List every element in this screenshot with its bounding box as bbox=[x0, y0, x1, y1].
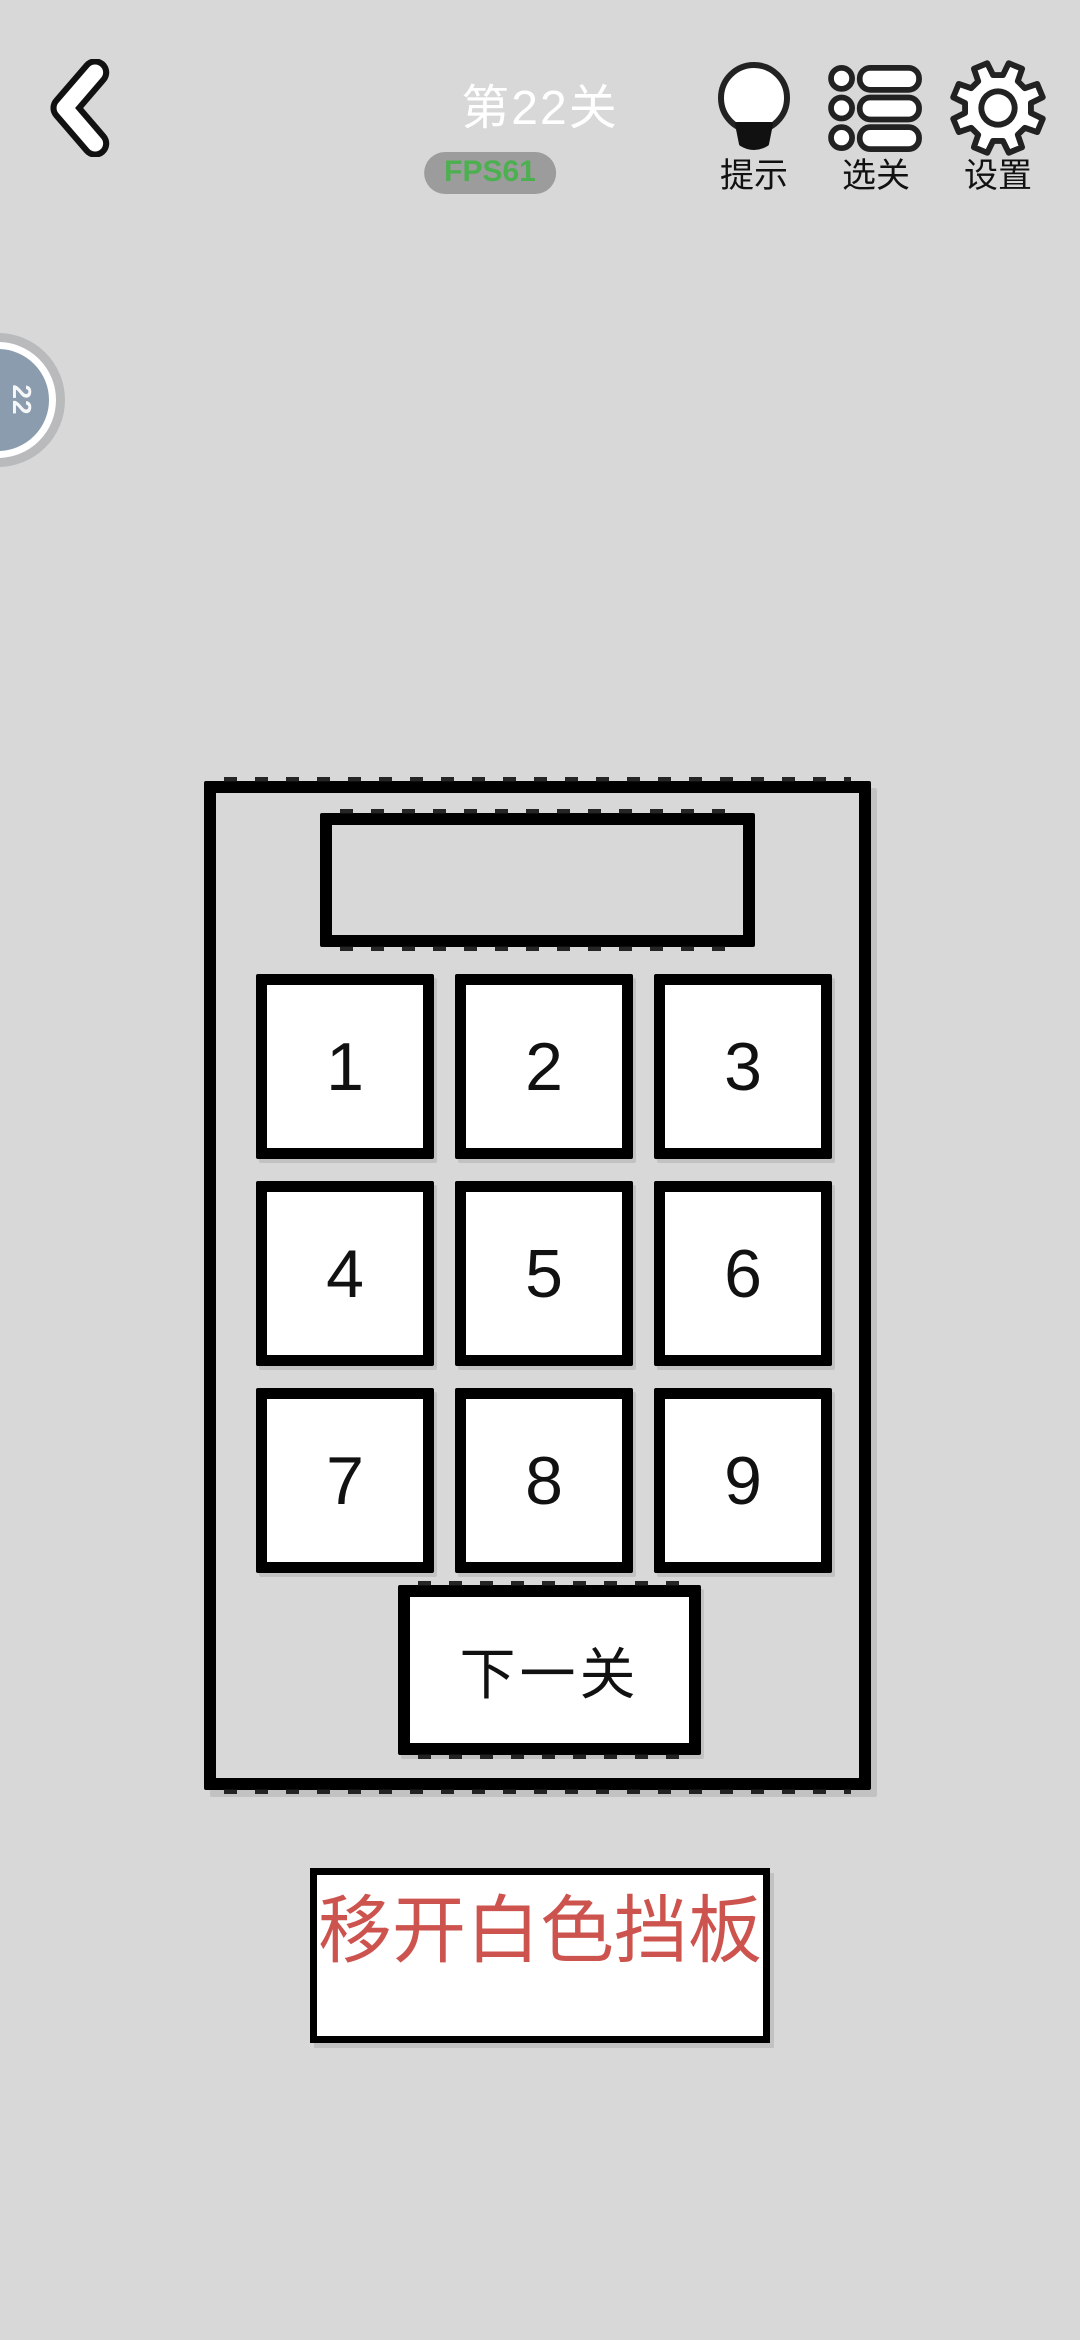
settings-label: 设置 bbox=[964, 158, 1032, 194]
key-2[interactable]: 2 bbox=[455, 974, 633, 1159]
hint-board-text: 移开白色挡板 bbox=[317, 1875, 763, 1971]
key-3[interactable]: 3 bbox=[654, 974, 832, 1159]
key-7[interactable]: 7 bbox=[256, 1388, 434, 1573]
list-icon bbox=[828, 58, 924, 158]
white-hint-board[interactable]: 移开白色挡板 bbox=[310, 1868, 770, 2043]
calculator-panel: 1 2 3 4 5 6 7 8 9 下一关 bbox=[204, 781, 871, 1790]
keypad: 1 2 3 4 5 6 7 8 9 bbox=[256, 974, 832, 1573]
level-float-badge[interactable]: 22 bbox=[0, 342, 56, 458]
key-6[interactable]: 6 bbox=[654, 1181, 832, 1366]
hint-label: 提示 bbox=[720, 158, 788, 194]
level-select-label: 选关 bbox=[842, 158, 910, 194]
level-select-button[interactable]: 选关 bbox=[824, 58, 928, 194]
gear-icon bbox=[949, 58, 1047, 158]
header-actions: 提示 选关 bbox=[702, 58, 1050, 194]
hint-button[interactable]: 提示 bbox=[702, 58, 806, 194]
fps-badge: FPS61 bbox=[424, 152, 556, 194]
key-5[interactable]: 5 bbox=[455, 1181, 633, 1366]
calculator-display bbox=[320, 813, 755, 947]
next-level-button[interactable]: 下一关 bbox=[398, 1585, 701, 1755]
game-screen: 第22关 FPS61 提示 bbox=[0, 0, 1080, 2340]
lightbulb-icon bbox=[708, 58, 800, 158]
settings-button[interactable]: 设置 bbox=[946, 58, 1050, 194]
key-9[interactable]: 9 bbox=[654, 1388, 832, 1573]
key-4[interactable]: 4 bbox=[256, 1181, 434, 1366]
key-1[interactable]: 1 bbox=[256, 974, 434, 1159]
key-8[interactable]: 8 bbox=[455, 1388, 633, 1573]
level-float-badge-text: 22 bbox=[6, 385, 37, 416]
